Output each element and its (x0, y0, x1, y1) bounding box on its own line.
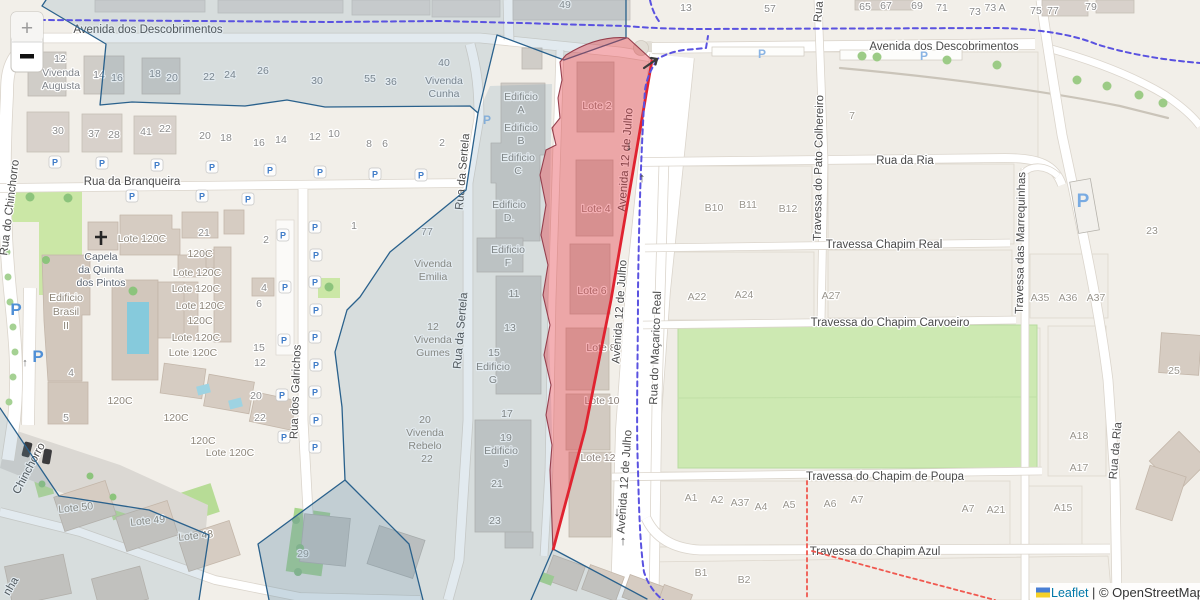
svg-text:A4: A4 (755, 501, 768, 513)
svg-text:A15: A15 (1054, 502, 1073, 514)
svg-text:P: P (52, 158, 58, 168)
svg-text:Augusta: Augusta (42, 80, 81, 92)
svg-text:37: 37 (88, 128, 100, 140)
svg-text:A36: A36 (1059, 292, 1078, 304)
svg-text:18: 18 (220, 132, 232, 144)
svg-text:II: II (63, 320, 69, 332)
svg-text:A1: A1 (685, 492, 698, 504)
svg-text:P: P (10, 300, 21, 319)
svg-text:+: + (21, 17, 33, 40)
svg-text:P: P (209, 163, 215, 173)
svg-text:Rua da Branqueira: Rua da Branqueira (84, 176, 181, 188)
svg-text:Leaflet: Leaflet (1051, 586, 1089, 600)
svg-text:P: P (281, 336, 287, 346)
svg-text:25: 25 (1168, 365, 1180, 377)
svg-text:Lote 120C: Lote 120C (173, 267, 222, 279)
svg-text:P: P (312, 388, 318, 398)
svg-text:22: 22 (254, 412, 266, 424)
svg-text:28: 28 (108, 129, 120, 141)
svg-text:120C: 120C (187, 315, 213, 327)
svg-text:B12: B12 (779, 203, 798, 215)
svg-text:6: 6 (256, 298, 262, 310)
svg-text:da Quinta: da Quinta (78, 264, 124, 276)
svg-text:P: P (317, 168, 323, 178)
svg-text:Lote 120C: Lote 120C (172, 283, 221, 295)
svg-text:B1: B1 (695, 567, 708, 579)
svg-text:Travessa do Chapim de Poupa: Travessa do Chapim de Poupa (806, 471, 965, 483)
svg-text:12: 12 (54, 53, 66, 65)
svg-text:P: P (245, 195, 251, 205)
svg-text:P: P (282, 283, 288, 293)
svg-text:23: 23 (1146, 225, 1158, 237)
svg-text:15: 15 (253, 342, 265, 354)
svg-text:↑: ↑ (620, 533, 627, 548)
svg-text:P: P (281, 433, 287, 443)
svg-text:5: 5 (63, 412, 69, 424)
svg-text:2: 2 (263, 234, 269, 246)
svg-text:57: 57 (764, 3, 776, 15)
svg-text:P: P (313, 251, 319, 261)
svg-text:Edificio: Edificio (49, 292, 83, 304)
svg-text:21: 21 (198, 227, 210, 239)
svg-text:A27: A27 (822, 290, 841, 302)
svg-text:A2: A2 (711, 494, 724, 506)
svg-text:A17: A17 (1070, 462, 1089, 474)
svg-text:Lote 120C: Lote 120C (118, 233, 167, 245)
svg-text:69: 69 (911, 0, 923, 12)
svg-text:B11: B11 (739, 199, 757, 211)
svg-text:P: P (418, 171, 424, 181)
svg-text:Travessa das Marrequinhas: Travessa das Marrequinhas (1014, 172, 1028, 315)
svg-text:73 A: 73 A (984, 2, 1005, 14)
svg-text:71: 71 (936, 2, 948, 14)
svg-text:77: 77 (1047, 5, 1059, 17)
svg-text:dos Pintos: dos Pintos (76, 277, 125, 289)
svg-text:1: 1 (351, 220, 357, 232)
svg-text:B2: B2 (738, 574, 751, 586)
svg-text:14: 14 (275, 134, 287, 146)
svg-text:P: P (312, 333, 318, 343)
svg-text:7: 7 (849, 110, 855, 122)
svg-text:P: P (1077, 191, 1090, 212)
svg-text:4: 4 (68, 367, 74, 379)
svg-text:16: 16 (253, 137, 265, 149)
svg-text:P: P (199, 192, 205, 202)
svg-text:P: P (99, 159, 105, 169)
svg-text:A22: A22 (688, 291, 707, 303)
svg-text:2: 2 (439, 137, 445, 149)
svg-text:P: P (129, 192, 135, 202)
svg-text:P: P (372, 170, 378, 180)
svg-text:↓: ↓ (626, 138, 633, 153)
svg-text:12: 12 (254, 357, 266, 369)
svg-text:20: 20 (250, 390, 262, 402)
svg-text:120C: 120C (107, 395, 133, 407)
svg-text:120C: 120C (190, 435, 216, 447)
svg-text:Rua: Rua (812, 0, 826, 23)
svg-text:20: 20 (199, 130, 211, 142)
svg-text:120C: 120C (163, 412, 189, 424)
svg-text:A37: A37 (731, 497, 750, 509)
svg-text:↑: ↑ (22, 357, 28, 369)
svg-text:Travessa do Chapim Carvoeiro: Travessa do Chapim Carvoeiro (811, 317, 970, 329)
svg-text:P: P (312, 278, 318, 288)
svg-text:P: P (758, 47, 766, 61)
svg-text:65: 65 (859, 1, 871, 13)
svg-text:22: 22 (159, 123, 171, 135)
svg-text:Lote 120C: Lote 120C (169, 347, 218, 359)
svg-text:Lote 12: Lote 12 (580, 452, 615, 464)
svg-text:A35: A35 (1031, 292, 1050, 304)
svg-text:P: P (312, 443, 318, 453)
svg-text:A5: A5 (783, 499, 796, 511)
svg-text:A7: A7 (962, 503, 975, 515)
svg-text:41: 41 (140, 126, 152, 138)
svg-text:A21: A21 (987, 504, 1006, 516)
svg-text:4: 4 (261, 282, 267, 294)
svg-text:↑: ↑ (639, 170, 646, 185)
svg-text:↓: ↓ (614, 504, 621, 519)
svg-text:67: 67 (880, 0, 892, 12)
svg-text:Lote 120C: Lote 120C (206, 447, 255, 459)
svg-text:Lote 120C: Lote 120C (172, 332, 221, 344)
svg-text:A6: A6 (824, 498, 837, 510)
svg-text:30: 30 (52, 125, 64, 137)
svg-text:P: P (313, 361, 319, 371)
svg-text:Travessa Chapim Real: Travessa Chapim Real (826, 239, 943, 251)
svg-text:79: 79 (1085, 1, 1097, 13)
svg-text:73: 73 (969, 6, 981, 18)
svg-text:120C: 120C (187, 248, 213, 260)
svg-text:Brasil: Brasil (53, 306, 79, 318)
svg-text:B10: B10 (705, 202, 724, 214)
svg-text:6: 6 (382, 138, 388, 150)
svg-text:A18: A18 (1070, 430, 1089, 442)
svg-text:P: P (280, 231, 286, 241)
svg-text:P: P (154, 161, 160, 171)
svg-text:P: P (267, 166, 273, 176)
svg-text:Rua da Ria: Rua da Ria (876, 155, 934, 167)
svg-text:8: 8 (366, 138, 372, 150)
svg-text:A37: A37 (1087, 292, 1106, 304)
svg-text:Travessa do Pato Colhereiro: Travessa do Pato Colhereiro (812, 95, 827, 241)
svg-text:Capela: Capela (84, 251, 117, 263)
svg-text:13: 13 (680, 2, 692, 14)
svg-text:| © OpenStreetMap: | © OpenStreetMap (1092, 585, 1200, 600)
svg-text:P: P (313, 306, 319, 316)
svg-text:10: 10 (328, 128, 340, 140)
svg-text:12: 12 (309, 131, 321, 143)
svg-text:Lote 120C: Lote 120C (176, 300, 225, 312)
svg-text:P: P (32, 347, 43, 366)
svg-text:Avenida dos Descobrimentos: Avenida dos Descobrimentos (869, 41, 1019, 53)
svg-text:P: P (312, 223, 318, 233)
svg-text:75: 75 (1030, 5, 1042, 17)
svg-text:A7: A7 (851, 494, 864, 506)
svg-text:P: P (313, 416, 319, 426)
svg-text:A24: A24 (735, 289, 754, 301)
svg-text:Vivenda: Vivenda (42, 67, 80, 79)
svg-text:P: P (279, 391, 285, 401)
